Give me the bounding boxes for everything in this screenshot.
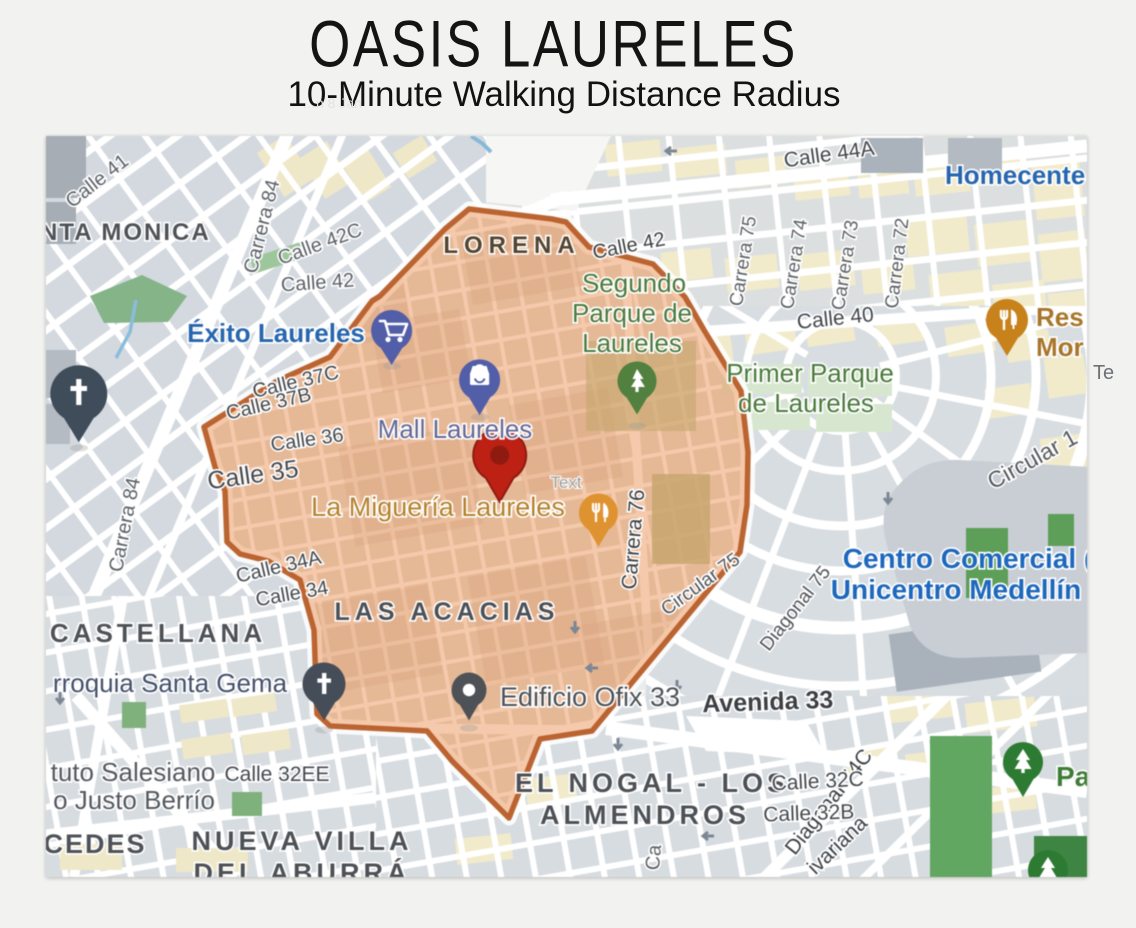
svg-text:Éxito Laureles: Éxito Laureles bbox=[187, 318, 365, 348]
svg-text:NUEVA VILLA: NUEVA VILLA bbox=[191, 826, 412, 856]
svg-text:CASTELLANA: CASTELLANA bbox=[50, 618, 266, 648]
svg-text:Calle 32C: Calle 32C bbox=[771, 768, 864, 796]
svg-text:LORENA: LORENA bbox=[443, 232, 580, 259]
svg-text:Mall Laureles: Mall Laureles bbox=[378, 414, 533, 444]
svg-text:Primer Parque: Primer Parque bbox=[726, 358, 894, 388]
svg-text:EL NOGAL - LOS: EL NOGAL - LOS bbox=[515, 768, 789, 798]
svg-text:Centro Comercial (: Centro Comercial ( bbox=[843, 543, 1087, 574]
svg-text:LAS ACACIAS: LAS ACACIAS bbox=[335, 598, 560, 626]
svg-text:ALMENDROS: ALMENDROS bbox=[540, 800, 750, 830]
svg-text:Segundo: Segundo bbox=[582, 268, 686, 298]
svg-text:Parque de: Parque de bbox=[572, 298, 692, 328]
svg-text:Ca: Ca bbox=[642, 843, 666, 871]
svg-text:Mor: Mor bbox=[1036, 332, 1084, 362]
svg-text:Unicentro Medellín: Unicentro Medellín bbox=[831, 574, 1081, 605]
svg-text:Calle 32B: Calle 32B bbox=[763, 800, 855, 826]
svg-text:tuto Salesiano: tuto Salesiano bbox=[51, 757, 216, 787]
svg-text:Laureles: Laureles bbox=[582, 328, 682, 358]
svg-text:CEDES: CEDES bbox=[46, 829, 147, 859]
svg-text:DEL ABURRÁ: DEL ABURRÁ bbox=[193, 857, 410, 877]
svg-text:de Laureles: de Laureles bbox=[738, 388, 874, 418]
svg-text:Pa: Pa bbox=[1056, 761, 1087, 792]
svg-text:Res: Res bbox=[1036, 302, 1084, 332]
svg-text:Avenida 33: Avenida 33 bbox=[702, 686, 834, 719]
svg-text:Calle 32EE: Calle 32EE bbox=[224, 763, 329, 786]
svg-text:rroquia Santa Gema: rroquia Santa Gema bbox=[53, 668, 288, 698]
svg-text:Edificio Ofix 33: Edificio Ofix 33 bbox=[500, 682, 680, 712]
svg-text:La Miguería Laureles: La Miguería Laureles bbox=[311, 492, 565, 522]
svg-text:Text: Text bbox=[550, 473, 581, 492]
svg-text:Homecente: Homecente bbox=[945, 160, 1085, 190]
svg-text:o Justo Berrío: o Justo Berrío bbox=[53, 785, 215, 815]
svg-text:NTA MONICA: NTA MONICA bbox=[46, 219, 211, 246]
